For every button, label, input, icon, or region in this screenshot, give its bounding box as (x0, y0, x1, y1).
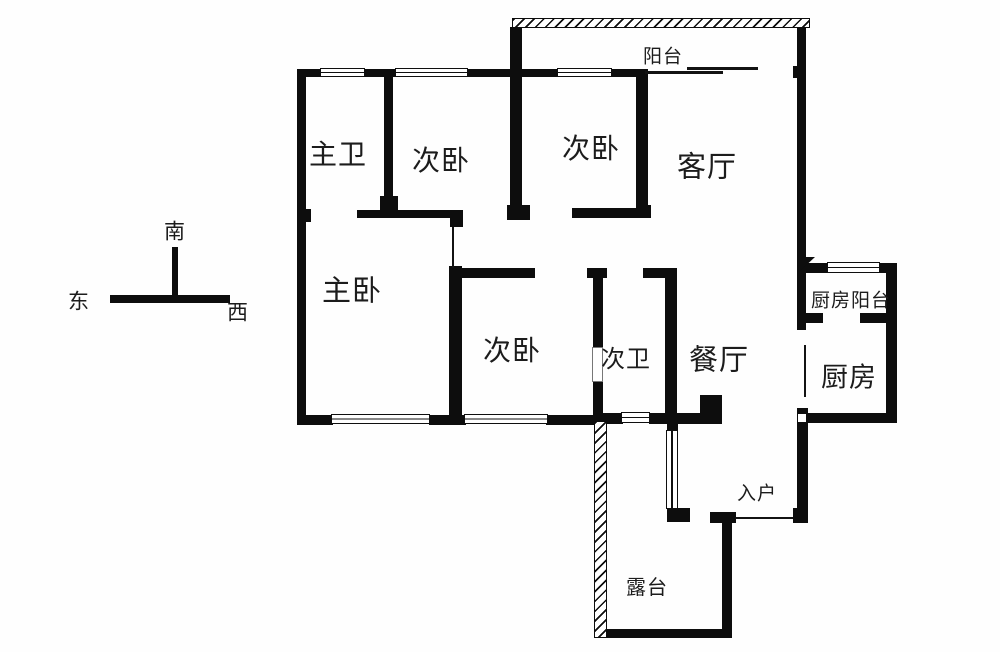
wall-segment (572, 208, 647, 218)
wall-segment (450, 215, 463, 227)
window (827, 262, 880, 273)
window (320, 68, 365, 77)
room-label-master-bedroom: 主卧 (322, 278, 382, 307)
wall-segment (806, 413, 897, 423)
room-label-master-bath: 主卫 (309, 142, 367, 170)
wall-segment (806, 263, 829, 273)
room-label-balcony: 阳台 (643, 48, 683, 67)
room-label-second-bath: 次卫 (601, 348, 651, 372)
wall-segment (384, 69, 393, 202)
wall-segment (522, 69, 559, 77)
window (621, 412, 650, 423)
wall-segment (297, 209, 311, 222)
window (331, 414, 430, 424)
door-or-rail-line (735, 517, 793, 519)
room-label-terrace: 露台 (626, 578, 668, 598)
hatched-wall (512, 18, 810, 28)
room-label-kitchen: 厨房 (821, 365, 877, 392)
room-label-living-room: 客厅 (677, 154, 737, 183)
door-or-rail-line (804, 345, 806, 397)
wall-segment (458, 268, 535, 278)
wall-segment (700, 395, 722, 423)
wall-segment (886, 263, 897, 423)
wall-segment (860, 313, 896, 323)
wall-segment (594, 629, 731, 638)
window (464, 414, 548, 424)
wall-segment (793, 508, 808, 523)
wall-segment (797, 27, 806, 330)
wall-segment (593, 272, 603, 348)
wall-segment (667, 508, 690, 522)
wall-segment (636, 72, 648, 210)
window (557, 68, 612, 77)
room-label-bedroom-1: 次卧 (412, 148, 470, 176)
wall-segment (710, 512, 736, 523)
wall-segment (507, 205, 530, 220)
wall-segment (722, 518, 732, 638)
window (395, 68, 468, 77)
compass-east-label: 东 (68, 292, 90, 313)
compass-west-label: 西 (227, 303, 249, 324)
window (666, 430, 678, 509)
wall-junction-patch (798, 414, 806, 422)
room-label-bedroom-2: 次卧 (562, 136, 620, 164)
compass-bar (110, 295, 230, 303)
floorplan-canvas: 阳台主卫次卧次卧客厅主卧次卧次卫餐厅厨房阳台厨房入户露台南东西 (0, 0, 1000, 652)
door-or-rail-line (687, 67, 758, 70)
room-label-bedroom-3: 次卧 (483, 338, 541, 366)
wall-segment (297, 415, 333, 425)
wall-segment (510, 27, 522, 208)
compass-south-label: 南 (164, 222, 186, 243)
door-or-rail-line (645, 71, 723, 74)
door-or-rail-line (452, 227, 454, 268)
wall-segment (297, 69, 306, 425)
room-label-kitchen-balcony: 厨房阳台 (811, 292, 891, 311)
wall-segment (806, 313, 823, 323)
room-label-dining-room: 餐厅 (689, 347, 749, 376)
wall-segment (665, 272, 677, 423)
hatched-wall (594, 421, 607, 638)
room-label-entry: 入户 (737, 485, 777, 504)
wall-segment (797, 408, 808, 523)
wall-segment (357, 210, 463, 218)
wall-segment (429, 415, 466, 425)
compass-bar (172, 247, 178, 297)
wall-segment (449, 266, 462, 425)
